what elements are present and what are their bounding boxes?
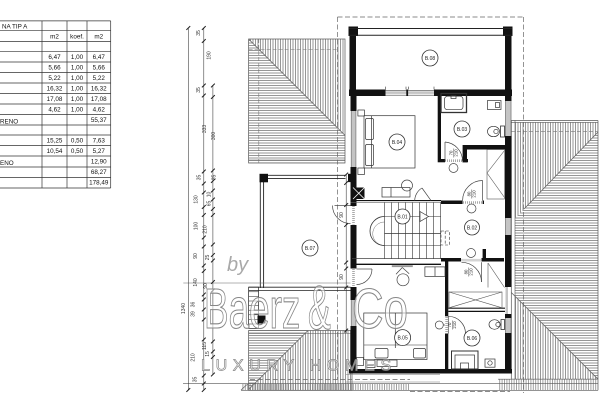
svg-text:0,50: 0,50: [71, 148, 84, 155]
svg-text:210: 210: [472, 190, 477, 198]
svg-text:7,63: 7,63: [93, 138, 106, 145]
svg-text:RENO: RENO: [0, 119, 18, 126]
svg-text:&: &: [308, 273, 331, 342]
svg-text:1,00: 1,00: [71, 107, 84, 114]
svg-text:B.01: B.01: [397, 214, 408, 220]
svg-text:15: 15: [205, 351, 211, 357]
svg-text:16,32: 16,32: [91, 86, 107, 93]
svg-text:15,25: 15,25: [47, 138, 63, 145]
svg-text:B.08: B.08: [425, 56, 436, 62]
svg-text:12,90: 12,90: [91, 159, 107, 166]
svg-text:koef.: koef.: [70, 34, 84, 41]
svg-text:m2: m2: [50, 34, 59, 41]
svg-text:35: 35: [196, 30, 202, 36]
svg-text:68,27: 68,27: [91, 169, 107, 176]
svg-text:115: 115: [202, 342, 208, 350]
svg-text:90: 90: [339, 274, 345, 280]
svg-text:6,47: 6,47: [48, 54, 61, 61]
svg-text:ENO: ENO: [0, 160, 14, 167]
svg-text:210: 210: [203, 225, 209, 234]
svg-text:65: 65: [207, 201, 213, 207]
svg-text:100: 100: [194, 222, 200, 231]
svg-text:178,49: 178,49: [89, 180, 109, 187]
svg-text:10,54: 10,54: [47, 148, 63, 155]
svg-text:36: 36: [191, 302, 197, 308]
svg-text:m2: m2: [94, 34, 103, 41]
svg-text:16,32: 16,32: [47, 86, 63, 93]
svg-text:10: 10: [207, 192, 213, 198]
svg-text:90: 90: [193, 253, 199, 259]
svg-text:17,08: 17,08: [91, 96, 107, 103]
svg-text:210: 210: [452, 321, 457, 329]
svg-text:210: 210: [469, 268, 474, 276]
svg-text:4,62: 4,62: [93, 107, 106, 114]
svg-text:300: 300: [211, 132, 217, 141]
svg-text:1,00: 1,00: [71, 65, 84, 72]
svg-text:1,00: 1,00: [71, 54, 84, 61]
svg-text:B.04: B.04: [392, 140, 403, 146]
svg-text:Co: Co: [352, 276, 408, 340]
svg-text:140: 140: [193, 278, 199, 287]
svg-text:B.02: B.02: [467, 225, 478, 231]
svg-text:35: 35: [212, 175, 218, 181]
svg-text:39: 39: [191, 311, 197, 317]
svg-text:5,22: 5,22: [48, 75, 61, 82]
svg-text:35: 35: [193, 377, 199, 383]
svg-text:5,22: 5,22: [93, 75, 106, 82]
svg-text:5,27: 5,27: [93, 148, 106, 155]
svg-text:4,62: 4,62: [48, 107, 61, 114]
svg-text:B.03: B.03: [457, 127, 468, 133]
svg-text:by: by: [227, 254, 249, 276]
svg-text:5,66: 5,66: [48, 65, 61, 72]
svg-text:35: 35: [196, 87, 202, 93]
svg-text:1,00: 1,00: [71, 75, 84, 82]
svg-text:35: 35: [197, 175, 203, 181]
svg-text:130: 130: [194, 195, 200, 204]
svg-text:5,66: 5,66: [93, 65, 106, 72]
svg-text:55,37: 55,37: [91, 117, 107, 124]
svg-text:0,50: 0,50: [71, 138, 84, 145]
svg-text:25: 25: [205, 255, 211, 261]
svg-text:NA TIP A: NA TIP A: [2, 24, 28, 31]
svg-text:90: 90: [339, 212, 345, 218]
svg-text:333: 333: [202, 125, 208, 134]
svg-text:210: 210: [191, 353, 197, 362]
svg-text:210: 210: [454, 149, 459, 157]
svg-text:1,00: 1,00: [71, 96, 84, 103]
svg-text:B.07: B.07: [305, 246, 316, 252]
svg-text:1,00: 1,00: [71, 86, 84, 93]
svg-text:6,47: 6,47: [93, 54, 106, 61]
svg-text:B.06: B.06: [467, 336, 478, 342]
svg-text:190: 190: [207, 51, 213, 60]
svg-text:1340: 1340: [181, 303, 187, 314]
svg-text:17,08: 17,08: [47, 96, 63, 103]
svg-text:LUXURY HOMES: LUXURY HOMES: [201, 358, 397, 375]
svg-text:Baerz: Baerz: [204, 278, 300, 341]
